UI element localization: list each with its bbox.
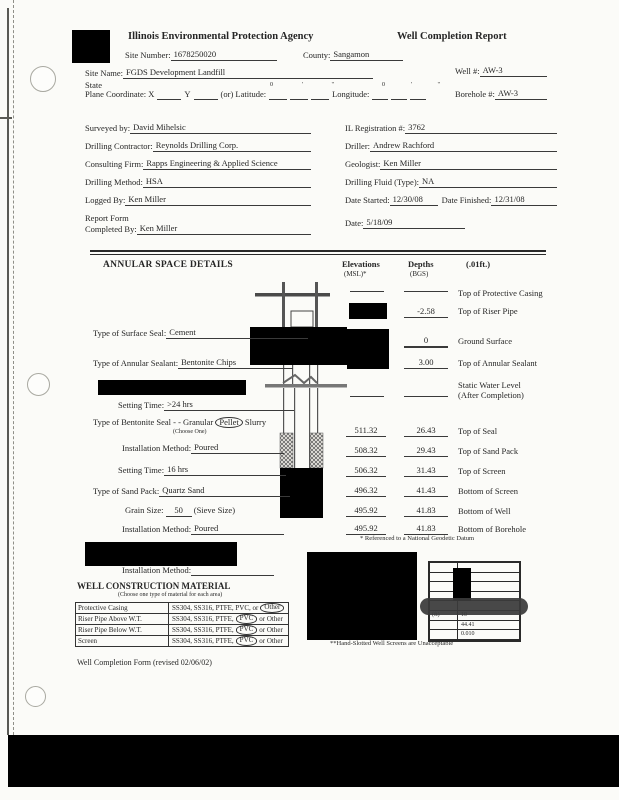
field-value <box>191 575 274 576</box>
field-label: Date: <box>345 219 363 229</box>
field-report-form-line1: Report Form <box>85 214 129 224</box>
redaction-value-bar <box>453 568 471 601</box>
latitude-blank <box>269 90 287 100</box>
geodetic-footnote: * Referenced to a National Geodetic Datu… <box>360 535 474 542</box>
binding-dashed-line <box>13 0 14 735</box>
field-label: Type of Annular Sealant: <box>93 359 178 369</box>
elev-value: 506.32 <box>346 466 386 477</box>
col-header-depths: Depths <box>408 260 434 270</box>
field-surface-seal: Type of Surface Seal: Cement <box>93 328 308 339</box>
plane-coordinate-row: Plane Coordinate: X Y (or) Latitude: Lon… <box>85 90 447 100</box>
field-date: Date: 5/18/09 <box>345 218 465 229</box>
depth-value: 31.43 <box>404 466 448 477</box>
row-label-line2: (After Completion) <box>458 391 524 401</box>
options-text: SS304, SS316, PTFE, <box>172 615 234 623</box>
field-label: Logged By: <box>85 196 125 206</box>
field-installation-method-3: Installation Method: <box>122 566 274 576</box>
longitude-blank <box>372 90 388 100</box>
agency-title: Illinois Environmental Protection Agency <box>128 31 313 43</box>
report-title: Well Completion Report <box>397 31 507 43</box>
field-label: Slurry <box>245 417 266 427</box>
elev-value: 495.92 <box>346 524 386 535</box>
construction-title: WELL CONSTRUCTION MATERIAL <box>77 581 230 591</box>
minute-mark: ' <box>302 82 303 89</box>
field-dates: Date Started: 12/30/08 Date Finished: 12… <box>345 195 557 206</box>
redaction-elevation <box>349 303 387 319</box>
options-text: or Other <box>259 626 283 634</box>
field-sand-pack: Type of Sand Pack: Quartz Sand <box>93 486 290 497</box>
field-installation-method-2: Installation Method: Poured <box>122 524 284 535</box>
latitude-dms-marks: 0 ' " <box>270 82 334 89</box>
borehole-number-label: Borehole #: <box>455 90 495 100</box>
field-surveyed-by: Surveyed by: David Mihelsic <box>85 123 311 134</box>
field-label: Date Finished: <box>442 196 492 206</box>
field-label: Drilling Fluid (Type): <box>345 178 419 188</box>
field-label: Grain Size: <box>125 505 163 515</box>
field-report-form-completed-by: Completed By: Ken Miller <box>85 224 311 235</box>
field-installation-method-1: Installation Method: Poured <box>122 443 284 454</box>
county-row: County: Sangamon <box>303 50 403 61</box>
circled-choice: Other <box>260 603 284 612</box>
row-label: Top of Annular Sealant <box>458 359 537 369</box>
field-grain-size: Grain Size: 50 (Sieve Size) <box>125 506 235 517</box>
row-label: Top of Sand Pack <box>458 447 518 457</box>
degree-mark: 0 <box>270 82 273 89</box>
table-row <box>430 573 519 583</box>
scan-black-band <box>8 735 619 787</box>
margin-tick <box>0 117 12 119</box>
latitude-label: (or) Latitude: <box>221 90 267 100</box>
field-value: Rapps Engineering & Applied Science <box>143 159 311 170</box>
elev-blank <box>350 396 384 397</box>
redaction-box-large <box>307 552 417 640</box>
coordinate-x-blank <box>157 90 181 100</box>
longitude-blank <box>410 90 426 100</box>
options-text: SS304, SS316, PTFE, PVC, or <box>172 604 258 612</box>
circled-choice: PVC <box>236 614 258 623</box>
table-row: Protective Casing SS304, SS316, PTFE, PV… <box>76 603 288 614</box>
field-value: Poured <box>191 524 284 535</box>
row-label: Top of Seal <box>458 427 497 437</box>
field-geologist: Geologist: Ken Miller <box>345 159 557 170</box>
field-value: Cement <box>166 328 308 339</box>
field-value: David Mihelsic <box>130 123 311 134</box>
depth-value: 26.43 <box>404 426 448 437</box>
field-value: 12/31/08 <box>491 195 557 206</box>
table-row: Screen SS304, SS316, PTFE, PVC or Other <box>76 636 288 646</box>
field-value: 12/30/08 <box>390 195 438 206</box>
field-logged-by: Logged By: Ken Miller <box>85 195 311 206</box>
field-value: 3762 <box>405 123 557 134</box>
field-label: Installation Method: <box>122 444 191 454</box>
field-label: IL Registration #: <box>345 124 405 134</box>
table-row: 44.41 <box>430 621 519 631</box>
county-value: Sangamon <box>330 50 403 61</box>
options-text: SS304, SS316, PTFE, <box>172 637 234 645</box>
construction-table: Protective Casing SS304, SS316, PTFE, PV… <box>75 602 289 647</box>
borehole-number-value: AW-3 <box>495 89 547 100</box>
borehole-number-row: Borehole #: AW-3 <box>455 89 547 100</box>
row-label: Bottom of Well <box>458 507 511 517</box>
field-drilling-method: Drilling Method: HSA <box>85 177 311 188</box>
site-name-label: Site Name: <box>85 69 123 79</box>
field-value: Ken Miller <box>137 224 311 235</box>
options-text: SS304, SS316, PTFE, <box>172 626 234 634</box>
site-name-value: FGDS Development Landfill <box>123 68 373 79</box>
table-row: Riser Pipe Above W.T. SS304, SS316, PTFE… <box>76 614 288 625</box>
row-label: Bottom of Borehole <box>458 525 526 535</box>
redaction-box-header <box>72 30 110 63</box>
punch-hole <box>25 686 46 707</box>
field-label: Date Started: <box>345 196 390 206</box>
field-driller: Driller: Andrew Rachford <box>345 141 557 152</box>
elev-value: 496.32 <box>346 486 386 497</box>
depth-value: 41.83 <box>404 506 448 517</box>
field-label: Setting Time: <box>118 401 164 411</box>
field-setting-time-1: Setting Time: >24 hrs <box>118 400 294 411</box>
field-drilling-fluid: Drilling Fluid (Type): NA <box>345 177 557 188</box>
field-label: Type of Bentonite Seal - - Granular <box>93 417 213 427</box>
field-label: Setting Time: <box>118 466 164 476</box>
options-cell: SS304, SS316, PTFE, PVC, or Other <box>169 603 288 612</box>
field-value: Bentonite Chips <box>178 358 293 369</box>
field-value: Reynolds Drilling Corp. <box>153 141 311 152</box>
second-mark: " <box>332 82 334 89</box>
annular-section-title: ANNULAR SPACE DETAILS <box>103 260 233 271</box>
field-value: Poured <box>191 443 284 454</box>
col-header-depths-sub: (BGS) <box>410 270 428 278</box>
col-header-elevations: Elevations <box>342 260 380 270</box>
depth-value: 0 <box>404 336 448 348</box>
depth-value: -2.58 <box>404 307 448 318</box>
elev-blank <box>350 291 384 292</box>
county-label: County: <box>303 51 330 61</box>
row-label: Top of Protective Casing <box>458 289 543 299</box>
field-label: Completed By: <box>85 225 137 235</box>
row-label: Bottom of Screen <box>458 487 518 497</box>
latitude-blank <box>311 90 329 100</box>
minute-mark: ' <box>411 82 412 89</box>
field-value: Ken Miller <box>125 195 311 206</box>
longitude-blank <box>391 90 407 100</box>
field-label: (Sieve Size) <box>194 505 235 515</box>
field-value: 50 <box>166 506 192 517</box>
field-setting-time-2: Setting Time: 16 hrs <box>118 465 286 476</box>
row-label: Ground Surface <box>458 337 512 347</box>
options-text: or Other <box>259 637 283 645</box>
area-cell: Screen <box>76 636 169 646</box>
field-value: 5/18/09 <box>363 218 465 229</box>
elev-value: 508.32 <box>346 446 386 457</box>
field-label: Surveyed by: <box>85 124 130 134</box>
options-cell: SS304, SS316, PTFE, PVC or Other <box>169 614 288 623</box>
row-label: Top of Riser Pipe <box>458 307 518 317</box>
field-drilling-contractor: Drilling Contractor: Reynolds Drilling C… <box>85 141 311 152</box>
hand-slotted-footnote: **Hand-Slotted Well Screens are Unaccept… <box>330 640 453 647</box>
field-value: Ken Miller <box>380 159 557 170</box>
field-value: Andrew Rachford <box>370 141 557 152</box>
field-label: Type of Surface Seal: <box>93 329 166 339</box>
elev-value: 495.92 <box>346 506 386 517</box>
site-number-label: Site Number: <box>125 51 171 61</box>
depth-value: 41.83 <box>404 524 448 535</box>
construction-subtitle: (Choose one type of material for each ar… <box>118 592 222 599</box>
redaction-box <box>98 380 246 395</box>
longitude-label: Longitude: <box>332 90 369 100</box>
second-mark: " <box>438 82 440 89</box>
coordinate-y-blank <box>194 90 218 100</box>
field-annular-sealant: Type of Annular Sealant: Bentonite Chips <box>93 358 293 369</box>
circled-choice: PVC <box>236 625 258 634</box>
table-row <box>430 563 519 573</box>
field-bentonite-seal: Type of Bentonite Seal - - Granular Pell… <box>93 417 266 428</box>
circled-choice: Pellet <box>215 417 242 428</box>
cell-value: 0.010 <box>461 631 475 638</box>
field-consulting-firm: Consulting Firm: Rapps Engineering & App… <box>85 159 311 170</box>
cell-value: 44.41 <box>461 622 475 629</box>
latitude-blank <box>290 90 308 100</box>
field-label: Geologist: <box>345 160 380 170</box>
punch-hole <box>27 373 50 396</box>
longitude-dms-marks: 0 ' " <box>382 82 440 89</box>
redaction-box <box>85 542 237 566</box>
area-cell: Riser Pipe Below W.T. <box>76 625 169 635</box>
field-il-registration: IL Registration #: 3762 <box>345 123 557 134</box>
field-label: Consulting Firm: <box>85 160 143 170</box>
depth-value: 29.43 <box>404 446 448 457</box>
site-name-row: Site Name: FGDS Development Landfill <box>85 68 373 79</box>
field-label: Type of Sand Pack: <box>93 487 159 497</box>
field-label: Driller: <box>345 142 370 152</box>
site-number-value: 1678250020 <box>171 50 277 61</box>
circled-choice: PVC <box>236 636 258 645</box>
depth-blank <box>404 396 448 397</box>
field-value: >24 hrs <box>164 400 294 411</box>
section-divider <box>90 250 546 255</box>
field-label: Drilling Contractor: <box>85 142 153 152</box>
options-text: or Other <box>259 615 283 623</box>
degree-mark: 0 <box>382 82 385 89</box>
redaction-pill <box>420 598 528 615</box>
depth-blank <box>404 291 448 292</box>
field-value: 16 hrs <box>164 465 286 476</box>
redaction-elevation <box>347 329 389 369</box>
table-row: 0.010 <box>430 630 519 640</box>
site-number-row: Site Number: 1678250020 <box>125 50 277 61</box>
plane-coordinate-label: Plane Coordinate: X <box>85 90 154 100</box>
punch-hole <box>30 66 56 92</box>
well-number-row: Well #: AW-3 <box>455 66 547 77</box>
field-value: HSA <box>143 177 311 188</box>
field-value: NA <box>419 177 557 188</box>
field-label: Installation Method: <box>122 566 191 576</box>
well-number-value: AW-3 <box>480 66 547 77</box>
options-cell: SS304, SS316, PTFE, PVC or Other <box>169 625 288 634</box>
well-number-label: Well #: <box>455 67 480 77</box>
table-row <box>430 582 519 592</box>
area-cell: Protective Casing <box>76 603 169 613</box>
table-row: Riser Pipe Below W.T. SS304, SS316, PTFE… <box>76 625 288 636</box>
y-label: Y <box>184 90 190 100</box>
depth-value: 3.00 <box>404 358 448 369</box>
field-label: Installation Method: <box>122 525 191 535</box>
area-cell: Riser Pipe Above W.T. <box>76 614 169 624</box>
options-cell: SS304, SS316, PTFE, PVC or Other <box>169 636 288 645</box>
scanned-well-completion-report: Illinois Environmental Protection Agency… <box>0 0 619 800</box>
choose-one-note: (Choose One) <box>173 429 207 436</box>
depth-value: 41.43 <box>404 486 448 497</box>
col-header-unit: (.01ft.) <box>466 260 490 270</box>
field-value: Quartz Sand <box>159 486 290 497</box>
field-label: Drilling Method: <box>85 178 143 188</box>
form-revision-note: Well Completion Form (revised 02/06/02) <box>77 658 212 667</box>
elev-value: 511.32 <box>346 426 386 437</box>
row-label: Top of Screen <box>458 467 506 477</box>
